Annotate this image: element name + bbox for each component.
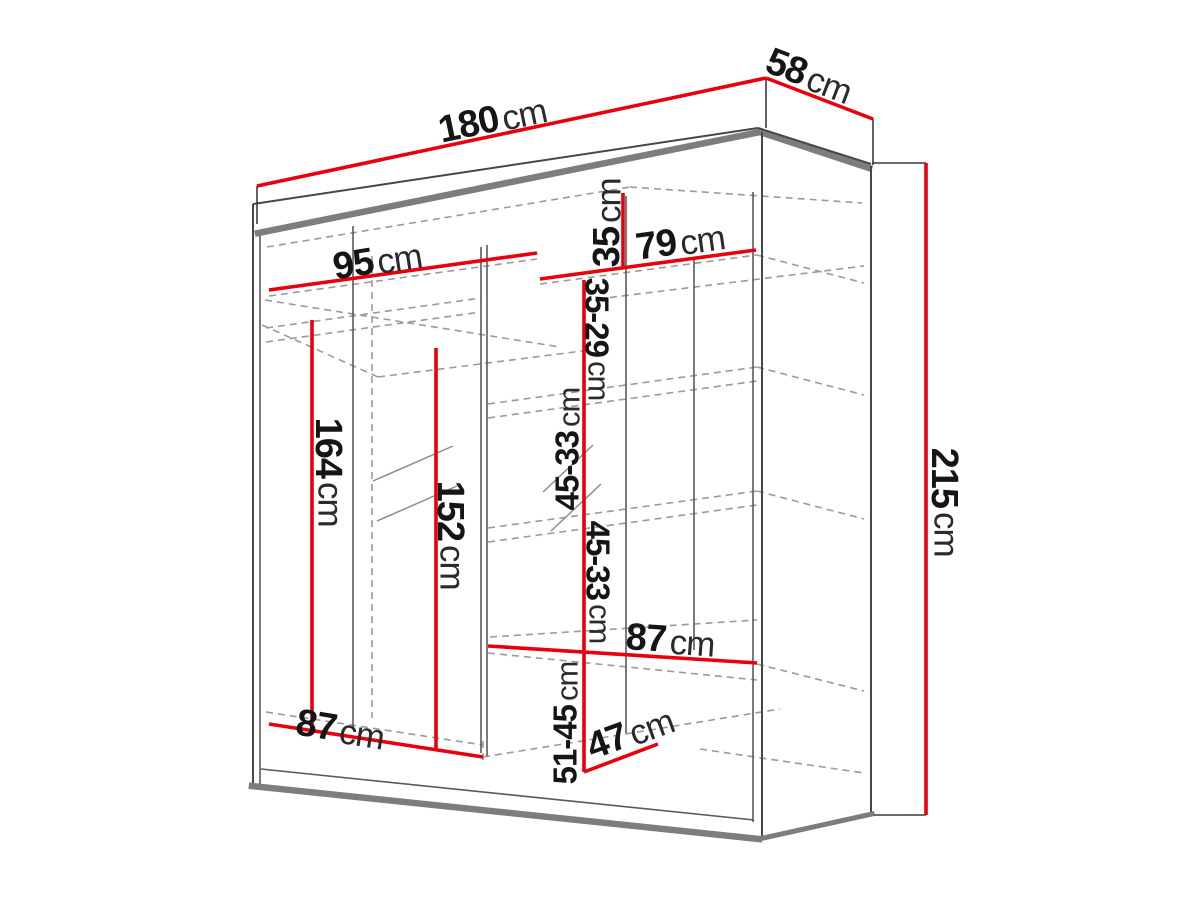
wardrobe-dimension-diagram: 180 cm 58 cm 215 cm 95 cm 79 cm 35 cm 35… [0, 0, 1200, 899]
top-front-edge [253, 128, 758, 204]
crown-front-edge [258, 132, 760, 233]
dim-value: 45-33 [549, 430, 586, 510]
dim-value: 87 [624, 616, 667, 661]
hidden-shelf-line [488, 653, 757, 680]
dim-value: 87 [293, 702, 339, 750]
hidden-edge-line [757, 255, 864, 283]
dim-unit: cm [678, 218, 728, 263]
hidden-shelf-line [490, 620, 757, 637]
dim-label-bottom-right-width: 47 cm [581, 698, 679, 768]
dim-unit: cm [552, 388, 587, 427]
dim-label-shelf-gap-upper: 35-29 cm [579, 278, 617, 401]
hidden-shelf-line [488, 381, 757, 418]
dim-unit: cm [311, 482, 350, 527]
dim-line-right-shelf-width [488, 646, 757, 663]
hidden-shelf-line [488, 367, 757, 404]
dim-unit: cm [374, 236, 424, 282]
diagram-canvas: 180 cm 58 cm 215 cm 95 cm 79 cm 35 cm 35… [0, 0, 1200, 899]
dim-label-hanging-left: 164 cm [307, 418, 350, 527]
dim-value: 180 [435, 98, 503, 152]
dim-unit: cm [433, 545, 472, 590]
dim-value: 164 [307, 418, 349, 479]
hidden-edge-line [630, 187, 862, 203]
dim-label-top-shelf-drop: 35 cm [586, 178, 629, 267]
dim-label-overall-depth: 58 cm [760, 40, 858, 112]
dim-unit: cm [590, 178, 629, 223]
dim-value: 51-45 [547, 704, 584, 784]
mirror-hatch-mark [373, 446, 453, 481]
dim-unit: cm [801, 59, 857, 111]
dim-value: 152 [429, 481, 471, 541]
dim-value: 35-29 [579, 278, 616, 358]
dim-unit: cm [550, 662, 585, 701]
dim-label-overall-width: 180 cm [435, 88, 551, 152]
crown-side-edge [760, 132, 869, 168]
dim-unit: cm [927, 512, 966, 557]
dim-value: 35 [586, 226, 628, 267]
dimension-labels: 180 cm 58 cm 215 cm 95 cm 79 cm 35 cm 35… [293, 40, 966, 784]
top-side-edge [758, 128, 871, 164]
dim-unit: cm [668, 623, 715, 665]
dim-unit: cm [337, 712, 387, 758]
dim-value: 79 [633, 221, 679, 268]
dim-label-bottom-gap: 51-45 cm [547, 662, 585, 785]
dim-label-shelf-gap-lower: 45-33 cm [580, 521, 618, 644]
hidden-shelf-line [757, 367, 864, 395]
hidden-floor-line [700, 749, 864, 773]
dim-value: 215 [923, 448, 965, 509]
hidden-shelf-line [488, 491, 757, 528]
dim-unit: cm [583, 604, 618, 643]
dim-unit: cm [498, 91, 550, 138]
dim-label-overall-height: 215 cm [923, 448, 966, 557]
dim-label-bottom-left-width: 87 cm [293, 702, 387, 758]
dim-value: 95 [330, 240, 377, 288]
hidden-shelf-line [488, 505, 757, 542]
base-side-edge [759, 814, 872, 839]
hidden-edge-line [266, 298, 481, 328]
dim-label-hanging-center: 152 cm [429, 481, 472, 590]
dim-label-right-shelf-width: 87 cm [624, 616, 716, 665]
hidden-edge-line [262, 325, 378, 377]
hidden-shelf-line [757, 491, 864, 519]
hidden-shelf-line [757, 664, 864, 691]
dim-label-shelf-gap-middle: 45-33 cm [549, 388, 587, 511]
dim-unit: cm [624, 702, 679, 754]
dim-unit: cm [582, 361, 617, 400]
hidden-edge-line [378, 350, 590, 377]
dim-value: 45-33 [580, 521, 617, 601]
